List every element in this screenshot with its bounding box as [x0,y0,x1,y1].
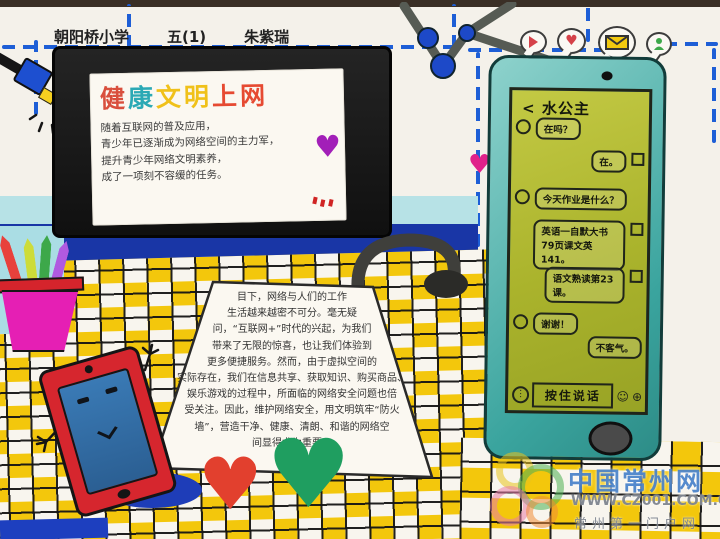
note-line: 目下，网络与人们的工作 [158,290,426,306]
chat-avatar-square [630,223,643,236]
chat-avatar-square [631,153,644,166]
heart-icon: ♥ [565,34,578,48]
play-bubble-icon [520,30,547,54]
mail-bubble-icon [598,26,636,59]
purple-heart-doodle: ♥ [314,132,342,163]
tv-title-char: 网 [240,81,269,111]
chat-bubble: 在吗？ [536,117,581,140]
person-bubble-icon [646,32,672,56]
phone-camera-dot [601,71,612,80]
chat-message: 谢谢！ [513,312,642,336]
poster-paragraph: 随着互联网的普及应用， 青少年已逐渐成为网络空间的主力军， 提升青少年网络文明素… [100,116,337,186]
play-icon [529,36,538,48]
tv-title-char: 文 [156,83,185,113]
tablet-eye [105,386,118,394]
chat-bubble: 语文熟读第23课。 [544,267,624,304]
chat-message: 语文熟读第23课。 [513,266,642,304]
network-node [418,28,438,48]
student-name: 朱紫瑞 [244,26,289,47]
plus-icon: ⊕ [632,389,642,403]
chat-message: 英语一自默大书79页课文英141。 [514,219,644,271]
hold-to-talk-button: 按住说话 [532,382,614,408]
chat-input-bar: ⋮ 按住说话 ☺ ⊕ [512,382,642,409]
tablet-eye [77,396,90,404]
envelope-icon [605,35,629,50]
poster-title: 健康文明上网 [100,75,337,116]
watermark-tagline: 常州第一门户网 [574,513,700,532]
phone: < 水公主 在吗？ 在。 今天作业是什么？ 英语一自默大书79页课文英141。 … [483,55,667,461]
back-icon: < [522,99,536,117]
chat-bubble: 英语一自默大书79页课文英141。 [533,219,626,270]
watermark-logo-ring [490,486,530,526]
chat-avatar-circle [513,314,528,329]
chat-avatar-circle [516,119,531,134]
network-node [431,54,455,78]
chat-avatar-circle [515,189,530,204]
pencil-cup [0,226,90,346]
tablet-smile [97,422,118,439]
watermark-url: WWW.CZ001.COM.CN [571,493,720,509]
phone-chat-screen: < 水公主 在吗？ 在。 今天作业是什么？ 英语一自默大书79页课文英141。 … [505,87,653,415]
tv-title-char: 上 [212,82,241,112]
chat-header: < 水公主 [522,97,590,119]
speaker-icon: ⋮ [512,386,529,403]
dashed-border-line [586,6,590,42]
chat-message: 今天作业是什么？ [515,187,644,211]
chat-message: 不客气。 [513,335,642,359]
person-icon [653,37,665,51]
hand-drawn-poster-photo: 朝阳桥小学 五(1) 朱紫瑞 ♥ [0,0,720,539]
smiley-icon: ☺ [616,389,629,403]
tv-title-char: 康 [128,83,157,113]
heart-bubble-icon: ♥ [557,28,586,54]
watermark: 中国常州网 WWW.CZ001.COM.CN 常州第一门户网 [488,448,720,538]
network-node [459,25,475,41]
chat-avatar-square [630,270,643,283]
chat-bubble: 不客气。 [588,336,642,359]
chat-bubble: 今天作业是什么？ [535,187,627,210]
class-name: 五(1) [167,26,206,47]
green-heart-doodle: ♥ [266,428,351,523]
dashed-border-line [712,48,716,143]
tv-title-char: 明 [184,82,213,112]
chat-bubble: 在。 [591,150,626,172]
photo-edge-strip [0,0,720,7]
tv-title-char: 健 [100,84,129,114]
tv-poster: 健康文明上网 随着互联网的普及应用， 青少年已逐渐成为网络空间的主力军， 提升青… [89,68,346,225]
watermark-logo-ring [526,496,558,528]
chat-message: 在。 [515,149,644,173]
header-info: 朝阳桥小学 五(1) 朱紫瑞 [54,26,289,47]
dashed-border-line [664,42,718,46]
tv-screen: 健康文明上网 随着互联网的普及应用， 青少年已逐渐成为网络空间的主力军， 提升青… [52,46,392,238]
chat-contact-name: 水公主 [542,100,590,119]
chat-bubble: 谢谢！ [533,312,578,335]
chat-message: 在吗？ [516,117,645,141]
note-line: 生活越来越密不可分。毫无疑 [158,306,426,322]
